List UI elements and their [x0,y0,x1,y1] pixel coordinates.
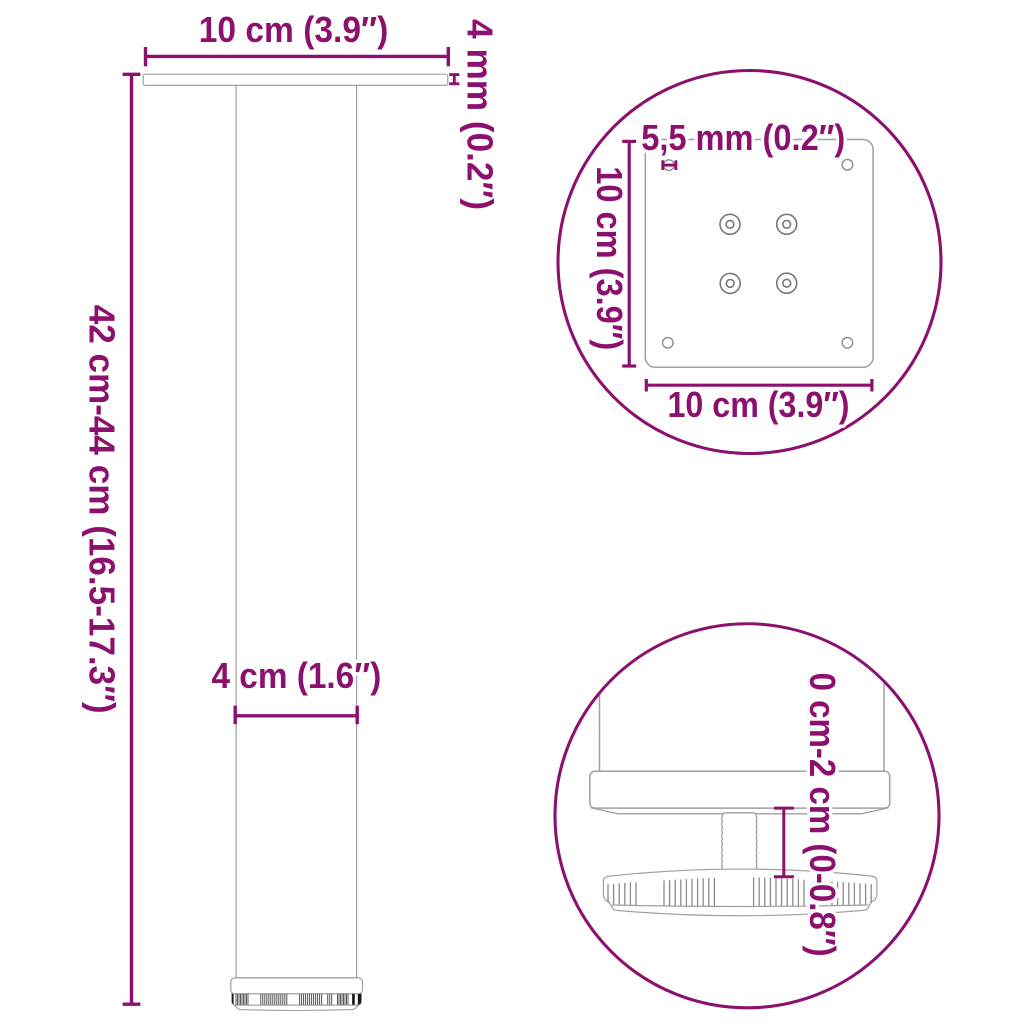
svg-text:42 cm-44 cm (16.5-17.3″): 42 cm-44 cm (16.5-17.3″) [82,305,123,714]
svg-text:5,5 mm (0.2″): 5,5 mm (0.2″) [641,117,845,158]
svg-text:4 cm (1.6″): 4 cm (1.6″) [212,655,382,696]
svg-text:4 mm (0.2″): 4 mm (0.2″) [460,19,501,210]
svg-text:10 cm (3.9″): 10 cm (3.9″) [589,166,630,350]
svg-text:0 cm-2 cm (0-0.8″): 0 cm-2 cm (0-0.8″) [802,673,843,957]
svg-text:10 cm (3.9″): 10 cm (3.9″) [668,384,850,425]
svg-text:10 cm (3.9″): 10 cm (3.9″) [199,9,389,50]
